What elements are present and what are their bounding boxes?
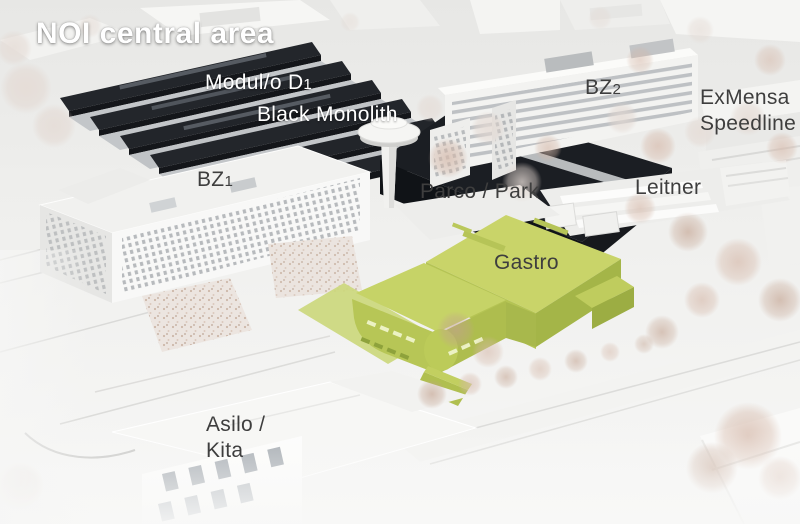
page-title: NOI central area: [36, 17, 274, 51]
label-bz1-text: BZ: [197, 168, 224, 191]
label-leitner: Leitner: [635, 175, 701, 201]
label-exmensa-speedline: ExMensa Speedline: [700, 85, 796, 136]
label-modulo-d1-sub: 1: [303, 76, 312, 93]
noi-model-photo: NOI central area Modul/o D1 Black Monoli…: [0, 0, 800, 524]
label-exmensa-line2: Speedline: [700, 111, 796, 137]
label-asilo-line2: Kita: [206, 438, 265, 464]
label-bz2-text: BZ: [585, 76, 612, 99]
label-asilo-line1: Asilo /: [206, 412, 265, 438]
label-bz2-sub: 2: [612, 81, 621, 98]
label-bz1-sub: 1: [224, 173, 233, 190]
label-exmensa-line1: ExMensa: [700, 85, 796, 111]
label-bz2: BZ2: [585, 75, 621, 101]
label-gastro: Gastro: [494, 250, 559, 276]
label-bz1: BZ1: [197, 167, 233, 193]
label-parco-park: Parco / Park: [420, 179, 539, 205]
label-layer: NOI central area Modul/o D1 Black Monoli…: [0, 0, 800, 524]
label-modulo-d1-text: Modul/o D: [205, 71, 303, 94]
label-black-monolith: Black Monolith: [257, 102, 398, 128]
label-asilo-kita: Asilo / Kita: [206, 412, 265, 463]
label-modulo-d1: Modul/o D1: [205, 70, 312, 96]
